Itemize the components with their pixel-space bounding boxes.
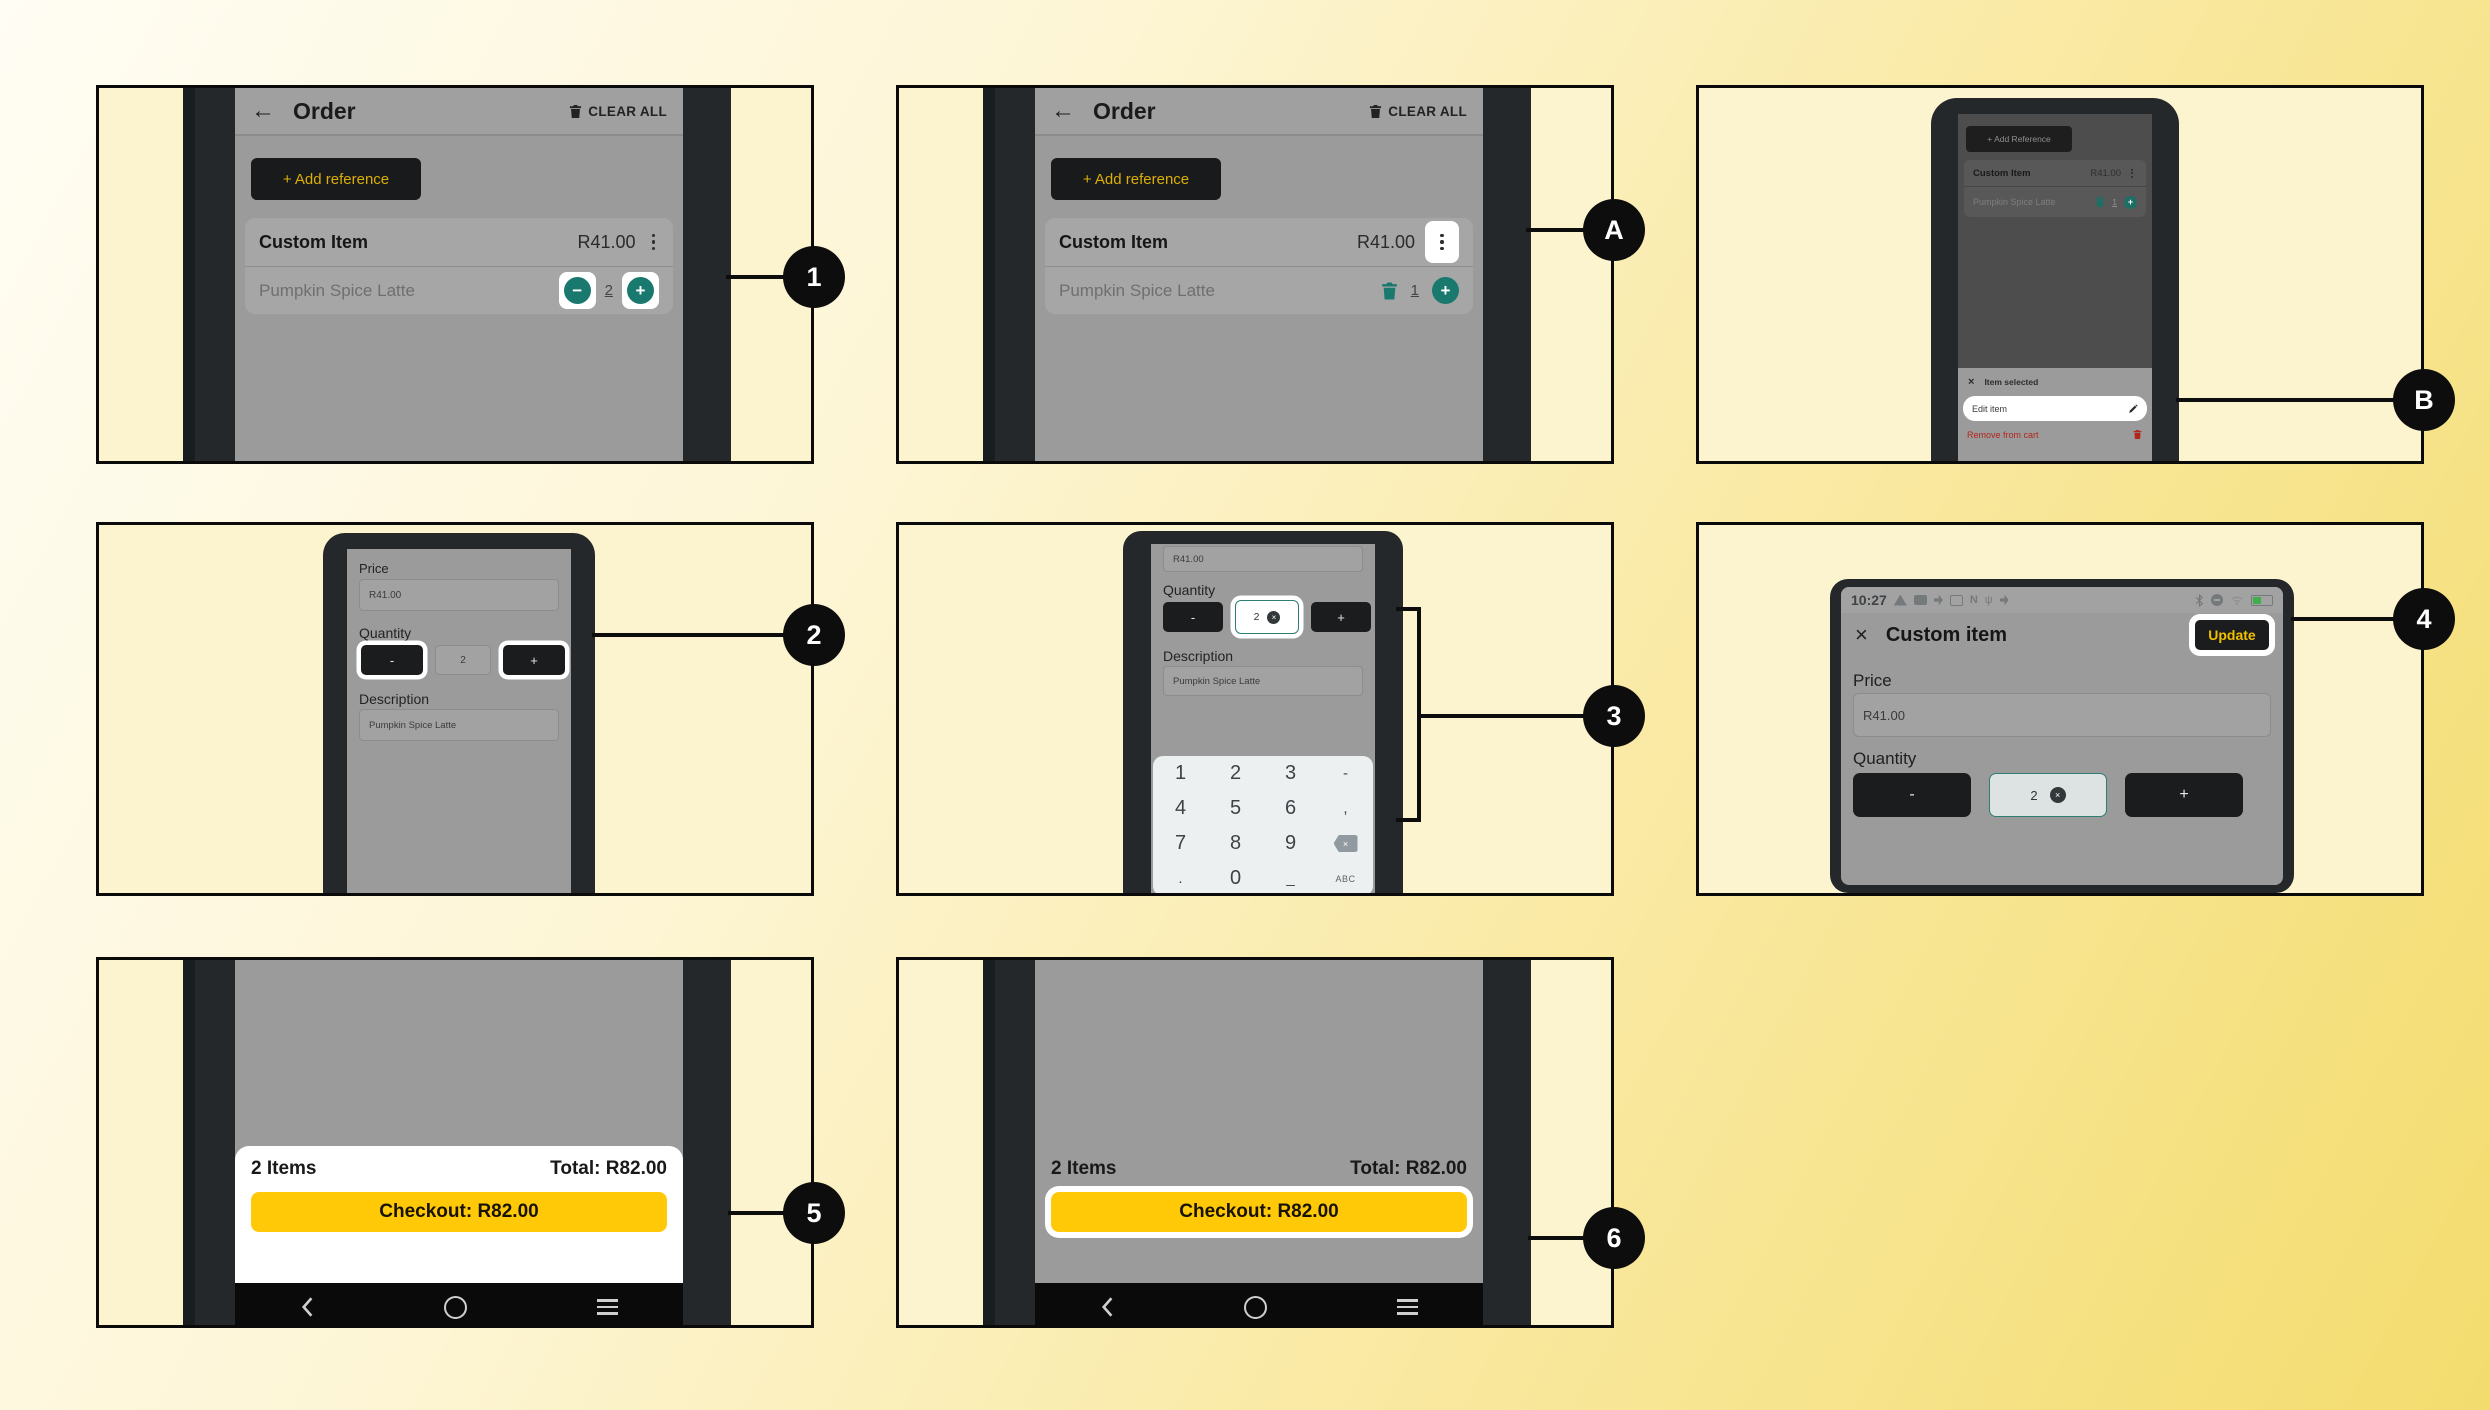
quantity-label: Quantity xyxy=(1853,749,1916,769)
key-abc[interactable]: ABC xyxy=(1335,874,1355,884)
clear-all-label: CLEAR ALL xyxy=(1388,104,1467,119)
clear-input-icon[interactable]: × xyxy=(1267,611,1280,624)
quantity-label: Quantity xyxy=(359,625,411,641)
item-detail-row: Pumpkin Spice Latte − 2 + xyxy=(245,266,673,314)
phone-frame: 2 Items Total: R82.00 Checkout: R82.00 xyxy=(183,960,731,1325)
quantity-input[interactable]: 2 xyxy=(435,645,491,675)
order-item-card: Custom Item R41.00 Pumpkin Spice Latte 1… xyxy=(1045,218,1473,314)
key-6[interactable]: 6 xyxy=(1285,797,1296,820)
image-icon xyxy=(1914,595,1927,605)
nav-recents-icon[interactable] xyxy=(597,1299,618,1315)
sheet-header: × Item selected xyxy=(1958,368,2152,396)
quantity-label: Quantity xyxy=(1163,582,1215,598)
price-label: Price xyxy=(359,561,389,576)
wifi-icon xyxy=(2230,595,2244,605)
backspace-icon[interactable]: × xyxy=(1334,835,1358,852)
back-icon[interactable]: ← xyxy=(251,97,275,125)
increase-quantity-button[interactable]: + xyxy=(1311,602,1371,632)
item-price: R41.00 xyxy=(577,232,635,253)
panel-b: + Add Reference Custom Item R41.00 Pumpk… xyxy=(1696,85,2424,464)
warning-icon xyxy=(1894,595,1907,606)
total-amount: Total: R82.00 xyxy=(1350,1158,1467,1180)
increase-quantity-button[interactable]: + xyxy=(622,272,659,309)
custom-item-screen: 10:27 N ψ × Custom item xyxy=(1841,587,2283,885)
clear-all-button[interactable]: CLEAR ALL xyxy=(569,104,667,119)
price-input[interactable]: R41.00 xyxy=(1163,546,1363,572)
callout-3: 3 xyxy=(1583,685,1645,747)
nav-back-icon[interactable] xyxy=(300,1296,314,1318)
status-bar: 10:27 N ψ xyxy=(1841,587,2283,613)
kebab-menu-highlight[interactable] xyxy=(1425,221,1459,263)
trash-icon xyxy=(1369,104,1382,119)
panel-2: Price R41.00 Quantity - 2 + Description … xyxy=(96,522,814,896)
status-time: 10:27 xyxy=(1851,592,1887,608)
item-description: Pumpkin Spice Latte xyxy=(1059,281,1215,301)
screen-header: × Custom item Update xyxy=(1841,613,2283,657)
item-name: Custom Item xyxy=(1059,232,1168,253)
sheet-title: Item selected xyxy=(1984,377,2038,387)
description-label: Description xyxy=(359,691,429,707)
usb-icon: ψ xyxy=(1985,594,1993,606)
plus-icon: + xyxy=(627,277,654,304)
callout-b: B xyxy=(2393,369,2455,431)
description-input[interactable]: Pumpkin Spice Latte xyxy=(1163,666,1363,696)
increase-quantity-button[interactable]: + xyxy=(503,645,565,675)
add-reference-button[interactable]: + Add reference xyxy=(1051,158,1221,200)
phone-frame: Price R41.00 Quantity - 2 + Description … xyxy=(323,533,595,896)
item-detail-row: Pumpkin Spice Latte 1 + xyxy=(1964,187,2146,217)
callout-6: 6 xyxy=(1583,1207,1645,1269)
description-label: Description xyxy=(1163,648,1233,664)
quantity-input-focused[interactable]: 2 × xyxy=(1989,773,2107,817)
key-period[interactable]: . xyxy=(1178,870,1182,887)
edit-item-label: Edit item xyxy=(1972,404,2007,414)
nav-home-icon[interactable] xyxy=(444,1296,467,1319)
item-name: Custom Item xyxy=(259,232,368,253)
item-description: Pumpkin Spice Latte xyxy=(1973,197,2056,207)
nav-recents-icon[interactable] xyxy=(1397,1299,1418,1315)
decrease-quantity-button[interactable]: - xyxy=(361,645,423,675)
order-screen: ← Order CLEAR ALL + Add reference Custom… xyxy=(1035,88,1483,461)
close-icon[interactable]: × xyxy=(1855,622,1868,648)
phone-bezel xyxy=(183,960,195,1325)
app-bar: ← Order CLEAR ALL xyxy=(1035,88,1483,136)
decrease-quantity-button[interactable]: - xyxy=(1853,773,1971,817)
totals-row: 2 Items Total: R82.00 xyxy=(235,1158,683,1180)
connector-line-b xyxy=(2176,398,2424,402)
price-input[interactable]: R41.00 xyxy=(1853,693,2271,737)
minus-icon: − xyxy=(564,277,591,304)
dnd-icon xyxy=(2211,594,2223,606)
quantity-value: 2 xyxy=(1254,611,1260,623)
decrease-quantity-button[interactable]: - xyxy=(1163,602,1223,632)
clear-input-icon[interactable]: × xyxy=(2050,787,2066,803)
panel-5: 2 Items Total: R82.00 Checkout: R82.00 xyxy=(96,957,814,1328)
back-icon[interactable]: ← xyxy=(1051,97,1075,125)
cart-summary-screen: 2 Items Total: R82.00 Checkout: R82.00 xyxy=(1035,960,1483,1325)
phone-frame: ← Order CLEAR ALL + Add reference Custom… xyxy=(183,88,731,461)
sync-icon xyxy=(1934,595,1943,606)
callout-4: 4 xyxy=(2393,588,2455,650)
callout-2: 2 xyxy=(783,604,845,666)
totals-row: 2 Items Total: R82.00 xyxy=(1035,1158,1483,1180)
add-reference-button[interactable]: + Add Reference xyxy=(1966,126,2072,152)
update-button[interactable]: Update xyxy=(2195,620,2269,650)
kebab-menu-icon[interactable] xyxy=(648,232,660,253)
phone-frame: 2 Items Total: R82.00 Checkout: R82.00 xyxy=(983,960,1531,1325)
app-bar: ← Order CLEAR ALL xyxy=(235,88,683,136)
trash-icon xyxy=(569,104,582,119)
key-7[interactable]: 7 xyxy=(1175,832,1186,855)
nfc-icon: N xyxy=(1970,594,1978,606)
phone-frame: + Add Reference Custom Item R41.00 Pumpk… xyxy=(1931,98,2179,464)
item-price: R41.00 xyxy=(1357,232,1415,253)
checkout-button[interactable]: Checkout: R82.00 xyxy=(251,1192,667,1232)
key-5[interactable]: 5 xyxy=(1230,797,1241,820)
sync-icon-2 xyxy=(2000,595,2009,606)
screen-title: Custom item xyxy=(1886,624,2007,647)
panel-6: 2 Items Total: R82.00 Checkout: R82.00 xyxy=(896,957,1614,1328)
page-title: Order xyxy=(293,98,356,125)
page-title: Order xyxy=(1093,98,1156,125)
panel-4: 10:27 N ψ × Custom item xyxy=(1696,522,2424,896)
item-header-row: Custom Item R41.00 xyxy=(245,218,673,266)
key-dash[interactable]: - xyxy=(1343,765,1348,782)
quantity-value[interactable]: 2 xyxy=(605,282,613,299)
key-1[interactable]: 1 xyxy=(1175,762,1186,785)
bluetooth-icon xyxy=(2195,594,2204,607)
numeric-keypad: 1 2 3 - 4 5 6 , 7 8 9 × . 0 _ ABC xyxy=(1153,756,1373,896)
pencil-icon xyxy=(2128,404,2138,414)
quantity-input-focused[interactable]: 2 × xyxy=(1235,600,1299,634)
connector-bracket-bottom-3 xyxy=(1396,818,1421,822)
quantity-value[interactable]: 1 xyxy=(2112,197,2117,207)
items-count: 2 Items xyxy=(251,1158,316,1180)
key-8[interactable]: 8 xyxy=(1230,832,1241,855)
decrease-quantity-button[interactable]: − xyxy=(559,272,596,309)
order-screen: ← Order CLEAR ALL + Add reference Custom… xyxy=(235,88,683,461)
connector-line-2 xyxy=(592,633,814,637)
edit-item-form-screen: Price R41.00 Quantity - 2 + Description … xyxy=(347,549,571,896)
edit-item-form-screen: R41.00 Quantity - 2 × + Description Pump… xyxy=(1151,544,1375,896)
callout-5: 5 xyxy=(783,1182,845,1244)
remove-item-trash-icon[interactable] xyxy=(2095,196,2105,208)
increase-quantity-button[interactable]: + xyxy=(1432,277,1459,304)
key-9[interactable]: 9 xyxy=(1285,832,1296,855)
total-amount: Total: R82.00 xyxy=(550,1158,667,1180)
edit-item-option[interactable]: Edit item xyxy=(1963,396,2147,421)
item-header-row: Custom Item R41.00 xyxy=(1964,160,2146,187)
android-nav-bar xyxy=(235,1283,683,1325)
item-detail-row: Pumpkin Spice Latte 1 + xyxy=(1045,266,1473,314)
clear-all-button[interactable]: CLEAR ALL xyxy=(1369,104,1467,119)
quantity-value: 2 xyxy=(2030,788,2037,803)
clear-all-label: CLEAR ALL xyxy=(588,104,667,119)
trash-icon-red xyxy=(2133,429,2142,440)
close-icon[interactable]: × xyxy=(1968,376,1974,388)
phone-frame: R41.00 Quantity - 2 × + Description Pump… xyxy=(1123,531,1403,896)
key-0[interactable]: 0 xyxy=(1230,867,1241,890)
key-comma[interactable]: , xyxy=(1343,800,1347,817)
item-description: Pumpkin Spice Latte xyxy=(259,281,415,301)
nav-home-icon[interactable] xyxy=(1244,1296,1267,1319)
add-reference-button[interactable]: + Add reference xyxy=(251,158,421,200)
price-label: Price xyxy=(1853,671,1892,691)
panel-1: ← Order CLEAR ALL + Add reference Custom… xyxy=(96,85,814,464)
remove-from-cart-label: Remove from cart xyxy=(1967,430,2039,440)
checkout-button-highlighted[interactable]: Checkout: R82.00 xyxy=(1051,1192,1467,1232)
remove-item-trash-icon[interactable] xyxy=(1381,281,1398,301)
key-underscore[interactable]: _ xyxy=(1286,870,1294,887)
kebab-menu-icon[interactable] xyxy=(2127,167,2137,180)
order-item-card: Custom Item R41.00 Pumpkin Spice Latte 1… xyxy=(1964,160,2146,217)
key-3[interactable]: 3 xyxy=(1285,762,1296,785)
nav-back-icon[interactable] xyxy=(1100,1296,1114,1318)
kebab-menu-icon xyxy=(1436,232,1448,253)
cart-summary-screen: 2 Items Total: R82.00 Checkout: R82.00 xyxy=(235,960,683,1325)
item-price: R41.00 xyxy=(2090,168,2121,179)
phone-frame: ← Order CLEAR ALL + Add reference Custom… xyxy=(983,88,1531,461)
remove-from-cart-option[interactable]: Remove from cart xyxy=(1967,429,2142,440)
callout-a: A xyxy=(1583,199,1645,261)
panel-3: R41.00 Quantity - 2 × + Description Pump… xyxy=(896,522,1614,896)
item-header-row: Custom Item R41.00 xyxy=(1045,218,1473,266)
key-2[interactable]: 2 xyxy=(1230,762,1241,785)
items-count: 2 Items xyxy=(1051,1158,1116,1180)
item-name: Custom Item xyxy=(1973,168,2031,179)
order-item-card: Custom Item R41.00 Pumpkin Spice Latte −… xyxy=(245,218,673,314)
price-input[interactable]: R41.00 xyxy=(359,579,559,611)
battery-icon xyxy=(2251,595,2273,606)
panel-a: ← Order CLEAR ALL + Add reference Custom… xyxy=(896,85,1614,464)
dimmed-order-screen: + Add Reference Custom Item R41.00 Pumpk… xyxy=(1958,114,2152,464)
phone-bezel xyxy=(983,88,995,461)
android-nav-bar xyxy=(1035,1283,1483,1325)
quantity-value[interactable]: 1 xyxy=(1411,282,1419,299)
description-input[interactable]: Pumpkin Spice Latte xyxy=(359,709,559,741)
item-selected-bottom-sheet: × Item selected Edit item Remove from ca… xyxy=(1958,368,2152,464)
callout-1: 1 xyxy=(783,246,845,308)
increase-quantity-button[interactable]: + xyxy=(2125,773,2243,817)
increase-quantity-button[interactable]: + xyxy=(2124,196,2137,209)
key-4[interactable]: 4 xyxy=(1175,797,1186,820)
phone-frame-landscape: 10:27 N ψ × Custom item xyxy=(1830,579,2294,893)
phone-bezel xyxy=(183,88,195,461)
phone-bezel xyxy=(983,960,995,1325)
box-icon xyxy=(1950,595,1963,606)
